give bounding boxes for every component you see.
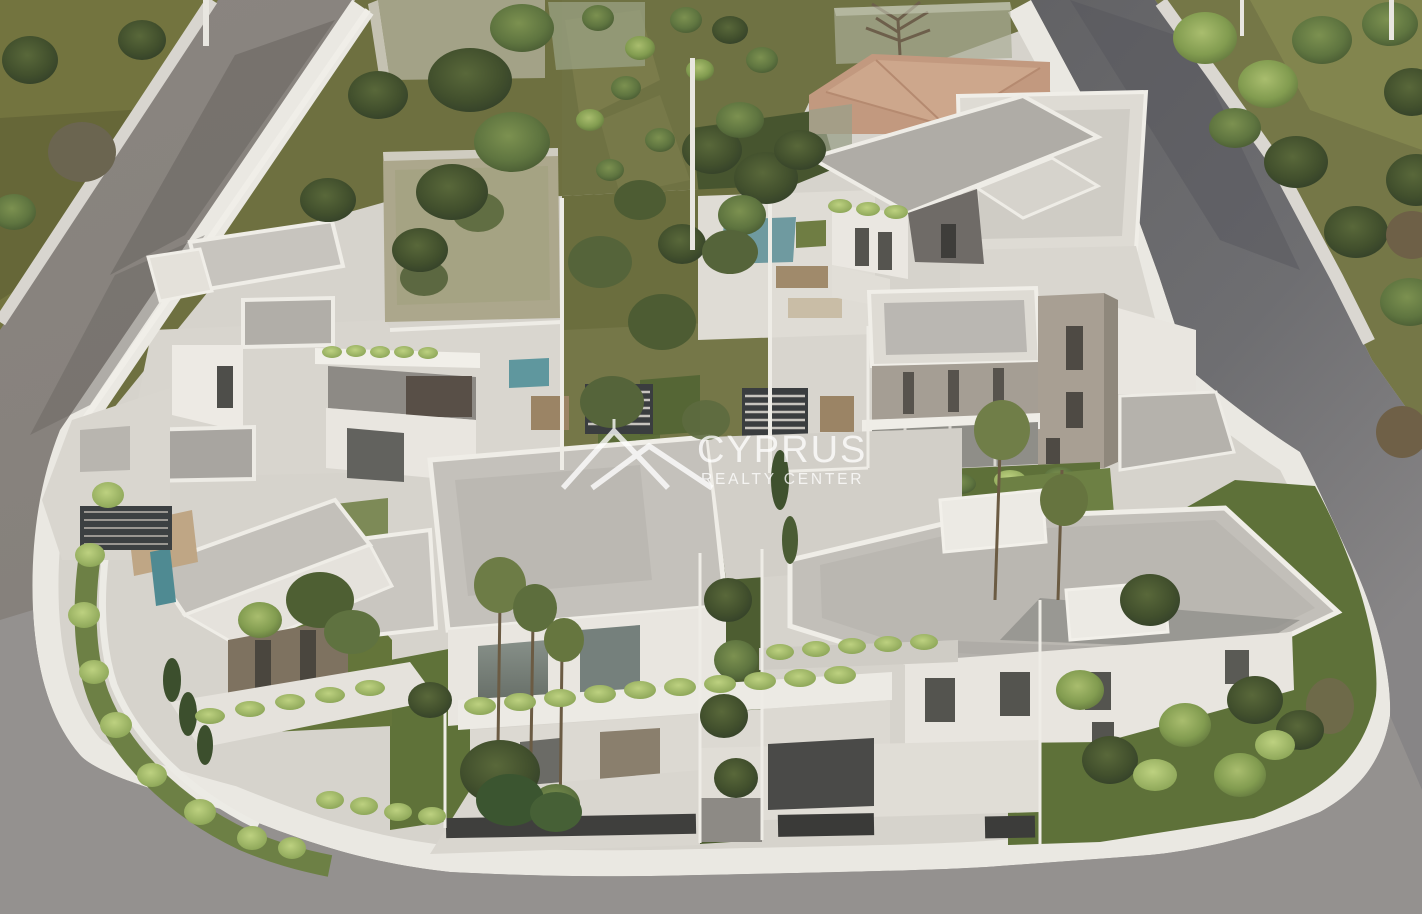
svg-text:REALTY CENTER: REALTY CENTER bbox=[701, 471, 864, 488]
svg-text:CYPRUS: CYPRUS bbox=[697, 429, 867, 471]
